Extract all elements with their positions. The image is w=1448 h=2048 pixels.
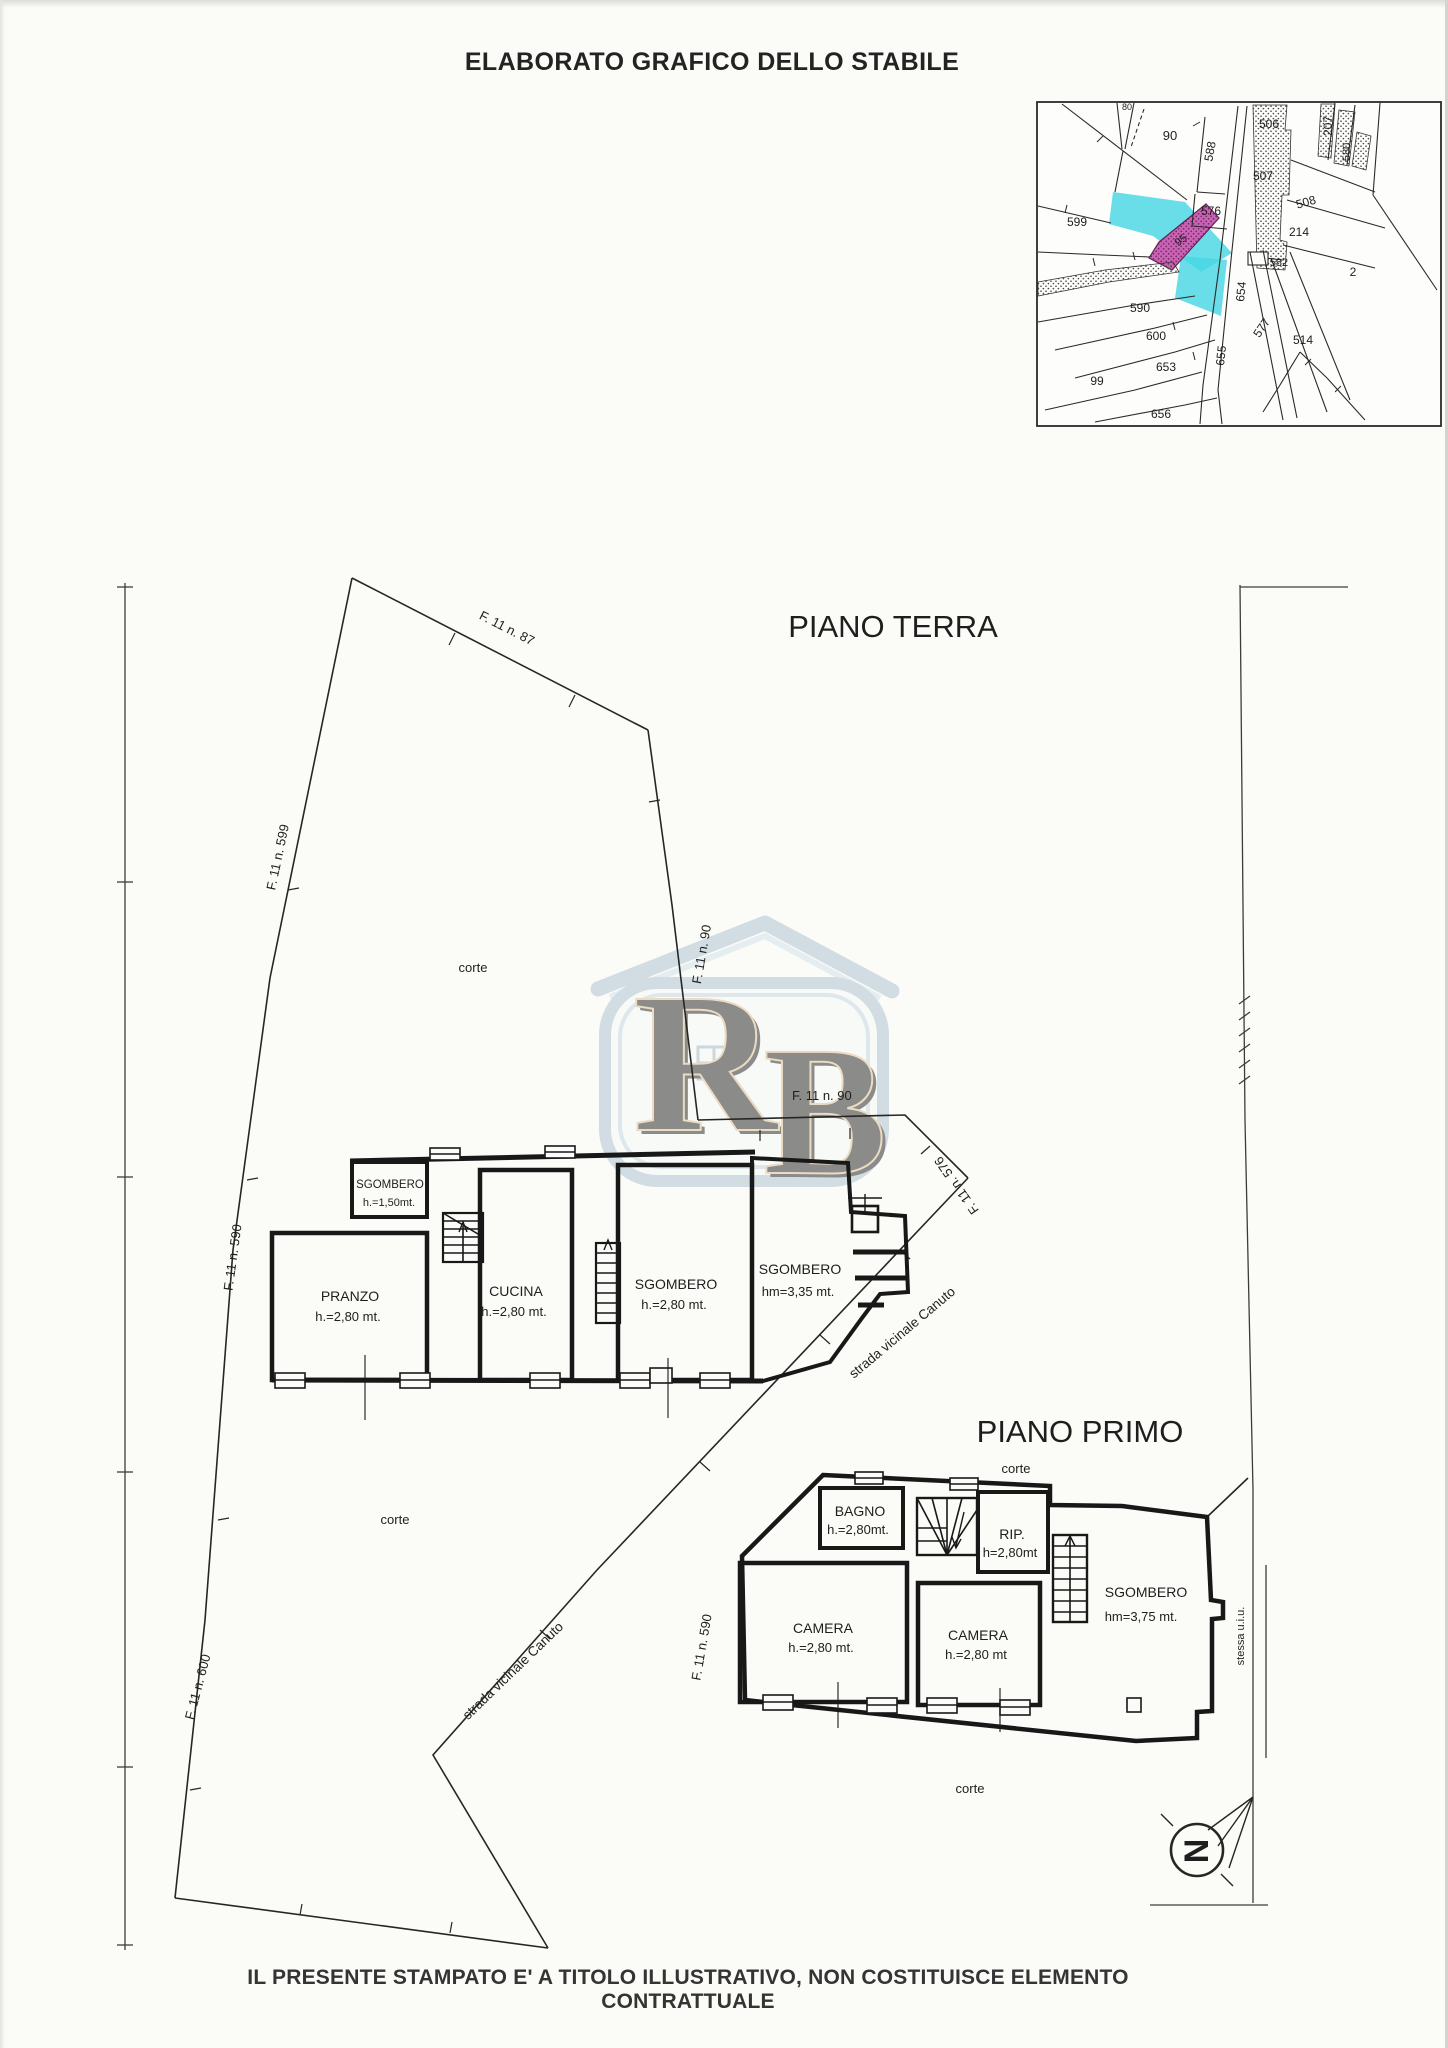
parcel-599: 599 — [1067, 215, 1087, 229]
label-f590-left: F. 11 n. 590 — [220, 1223, 244, 1291]
parcel-2: 2 — [1350, 265, 1357, 279]
parcel-580: 580 — [1341, 143, 1353, 161]
label-f90-horizontal: F. 11 n. 90 — [792, 1088, 852, 1103]
stairs-first-winder — [917, 1498, 977, 1555]
label-f590-first-floor: F. 11 n. 590 — [688, 1613, 714, 1682]
parcel-506: 506 — [1259, 117, 1279, 131]
window-symbols-ground — [275, 1146, 730, 1388]
parcel-207: 207 — [1321, 116, 1335, 136]
parcel-590: 590 — [1130, 301, 1150, 315]
room-bagno-name: BAGNO — [835, 1503, 886, 1519]
label-f600: F. 11 n. 600 — [182, 1653, 214, 1722]
parcel-576: 576 — [1201, 204, 1221, 218]
room-sgombero-first-height: hm=3,75 mt. — [1105, 1609, 1178, 1624]
first-floor-title: PIANO PRIMO — [977, 1414, 1184, 1449]
north-letter: N — [1178, 1839, 1216, 1864]
parcel-653: 653 — [1156, 360, 1176, 374]
room-sgombero-small-height: h.=1,50mt. — [363, 1197, 415, 1209]
room-rip-height: h=2,80mt — [983, 1545, 1038, 1560]
room-sgombero-tall-name: SGOMBERO — [759, 1261, 842, 1277]
cadastral-inset-map: 80 90 588 576 506 507 508 207 580 214 59… — [1035, 100, 1447, 434]
north-arrow-icon: N — [1161, 1797, 1253, 1886]
ground-floor-title: PIANO TERRA — [788, 609, 998, 644]
room-pranzo-name: PRANZO — [321, 1288, 379, 1304]
room-sgombero-first-name: SGOMBERO — [1105, 1584, 1188, 1600]
label-f599: F. 11 n. 599 — [263, 823, 292, 892]
parcel-214: 214 — [1289, 225, 1309, 239]
label-strada-2: strada vicinale Canuto — [460, 1619, 567, 1723]
parcel-boundary — [175, 578, 1248, 1948]
ground-floor-labels: SGOMBERO h.=1,50mt. PRANZO h.=2,80 mt. C… — [315, 1179, 841, 1324]
parcel-582: 582 — [1270, 257, 1288, 269]
scanned-floorplan-sheet: ELABORATO GRAFICO DELLO STABILE R R B B — [0, 0, 1448, 2048]
label-corte-left: corte — [381, 1512, 410, 1527]
parcel-507: 507 — [1253, 169, 1273, 183]
stairs-ground-1 — [443, 1213, 483, 1262]
parcel-655: 655 — [1213, 345, 1229, 367]
parcel-99: 99 — [1090, 374, 1104, 388]
label-corte-top: corte — [459, 960, 488, 975]
label-stessa-uiu: stessa u.i.u. — [1235, 1607, 1247, 1666]
room-sgombero-mid-height: h.=2,80 mt. — [641, 1297, 706, 1312]
parcel-600: 600 — [1146, 329, 1166, 343]
room-cucina-name: CUCINA — [489, 1283, 543, 1299]
label-f90-vertical: F. 11 n. 90 — [689, 923, 714, 984]
room-camera-right-height: h.=2,80 mt — [945, 1647, 1007, 1662]
label-corte-first-bottom: corte — [956, 1781, 985, 1796]
survey-frame — [117, 583, 1348, 1950]
room-sgombero-small-name: SGOMBERO — [356, 1179, 424, 1191]
pillar-block — [650, 1368, 672, 1383]
room-pranzo-height: h.=2,80 mt. — [315, 1309, 380, 1324]
parcel-656: 656 — [1151, 407, 1171, 421]
room-camera-left-height: h.=2,80 mt. — [788, 1640, 853, 1655]
label-strada-1: strada vicinale Canuto — [846, 1284, 958, 1381]
room-camera-right-name: CAMERA — [948, 1627, 1009, 1643]
parcel-654: 654 — [1233, 281, 1249, 303]
pillar-block-first — [1127, 1698, 1141, 1712]
stairs-first-ladder — [1053, 1535, 1087, 1622]
label-f576: F. 11 n. 576 — [931, 1154, 982, 1217]
room-cucina-height: h.=2,80 mt. — [481, 1304, 546, 1319]
disclaimer-text: IL PRESENTE STAMPATO E' A TITOLO ILLUSTR… — [188, 1966, 1188, 2014]
room-bagno-height: h.=2,80mt. — [827, 1522, 889, 1537]
label-f87: F. 11 n. 87 — [477, 608, 537, 648]
room-rip-name: RIP. — [999, 1526, 1024, 1542]
parcel-514: 514 — [1293, 333, 1313, 347]
label-corte-first-top: corte — [1002, 1461, 1031, 1476]
first-floor-plan — [740, 1472, 1223, 1741]
room-camera-left-name: CAMERA — [793, 1620, 854, 1636]
parcel-80: 80 — [1122, 102, 1132, 112]
room-sgombero-mid-name: SGOMBERO — [635, 1276, 718, 1292]
room-sgombero-tall-height: hm=3,35 mt. — [762, 1284, 835, 1299]
parcel-90: 90 — [1163, 128, 1177, 143]
